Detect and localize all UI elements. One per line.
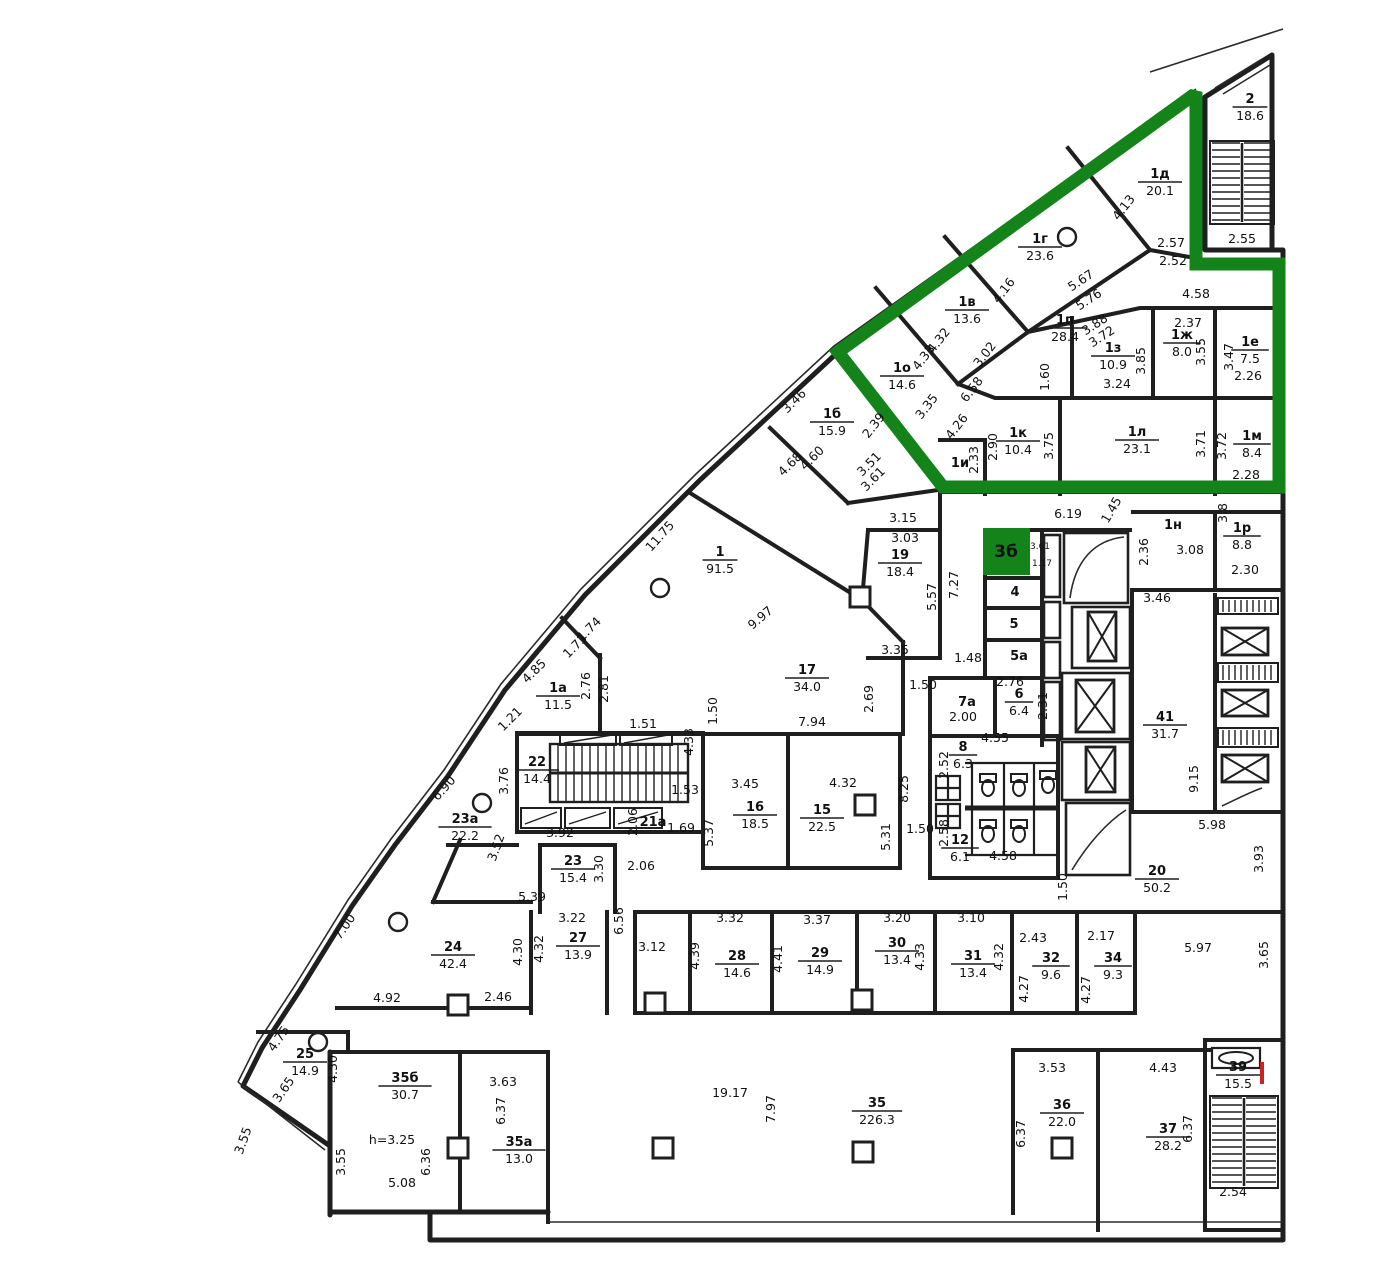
dim-label: 3.76	[496, 767, 511, 795]
dim-label: 5.31	[878, 823, 893, 851]
dim-label: 6.56	[611, 907, 626, 935]
dim-label: 3.93	[1251, 845, 1266, 873]
dim-label: 1.50	[1055, 873, 1070, 901]
floor-plan-drawing: 3б 218.61д20.11г23.61в13.61п28.41ж8.01е7…	[0, 0, 1375, 1280]
room-label: 1618.5	[733, 800, 777, 831]
dim-label: 3.12	[638, 939, 666, 954]
dim-label: 4.55	[981, 730, 1009, 745]
dim-label: 3.24	[1103, 376, 1131, 391]
svg-text:1п: 1п	[1056, 313, 1074, 328]
dim-label: 4.27	[1016, 975, 1031, 1003]
room-label: 1л23.1	[1115, 425, 1159, 456]
dim-label: 6.37	[1180, 1115, 1195, 1143]
room-tag: 1и	[951, 456, 969, 471]
dim-label: 4.32	[829, 775, 857, 790]
dim-label: 3.30	[591, 855, 606, 883]
room-label: 2442.4	[431, 940, 475, 971]
dim-label: 2.54	[1219, 1184, 1247, 1199]
dim-label: 5.97	[1184, 940, 1212, 955]
svg-text:15.5: 15.5	[1224, 1076, 1252, 1091]
room-label: 35226.3	[852, 1096, 902, 1127]
svg-text:31.7: 31.7	[1151, 726, 1179, 741]
dim-label: 1.50	[909, 677, 937, 692]
dim-label: 1.45	[1098, 494, 1125, 526]
dim-label: 2.52	[1159, 253, 1187, 268]
dim-label: 2.30	[1231, 562, 1259, 577]
svg-text:14.6: 14.6	[888, 377, 916, 392]
svg-text:9.3: 9.3	[1103, 967, 1123, 982]
dim-label: 3.85	[1133, 347, 1148, 375]
svg-text:1р: 1р	[1233, 521, 1251, 536]
dim-label: 3.55	[333, 1148, 348, 1176]
room-tag: 7а	[958, 695, 976, 710]
svg-text:6.1: 6.1	[950, 849, 970, 864]
svg-text:22.0: 22.0	[1048, 1114, 1076, 1129]
selected-room-marker[interactable]: 3б	[983, 528, 1030, 575]
svg-text:13.4: 13.4	[883, 952, 911, 967]
room-tag: 5	[1009, 617, 1018, 632]
svg-text:12: 12	[951, 833, 969, 848]
dim-label: 2.46	[484, 989, 512, 1004]
svg-text:50.2: 50.2	[1143, 880, 1171, 895]
dim-label: 4.16	[989, 275, 1018, 306]
dim-label: 9.15	[1186, 765, 1201, 793]
svg-text:13.6: 13.6	[953, 311, 981, 326]
dim-label: 3.53	[1038, 1060, 1066, 1075]
dim-label: 3.35	[912, 391, 941, 422]
dim-label: 3.10	[957, 910, 985, 925]
dim-label: 6.37	[1013, 1120, 1028, 1148]
svg-text:36: 36	[1053, 1098, 1071, 1113]
svg-text:6: 6	[1014, 687, 1023, 702]
dim-label: 2.52	[936, 751, 951, 779]
svg-text:2: 2	[1245, 92, 1254, 107]
dim-label: 6.36	[418, 1148, 433, 1176]
room-label: 218.6	[1233, 92, 1268, 123]
room-label: 1м8.4	[1233, 429, 1271, 460]
svg-text:7.5: 7.5	[1240, 351, 1260, 366]
svg-text:1в: 1в	[958, 295, 975, 310]
room-label: 1р8.8	[1223, 521, 1261, 552]
svg-text:1г: 1г	[1032, 232, 1048, 247]
svg-text:31: 31	[964, 949, 982, 964]
room-label: 66.4	[1005, 687, 1033, 718]
dim-label: 1.69	[667, 820, 695, 835]
svg-text:1: 1	[715, 545, 724, 560]
dim-label: 1.51	[629, 716, 657, 731]
dim-label: 3.45	[731, 776, 759, 791]
svg-text:13.0: 13.0	[505, 1151, 533, 1166]
room-label: 23а22.2	[438, 812, 491, 843]
dim-label: 2.76	[578, 672, 593, 700]
room-label: 2315.4	[551, 854, 595, 885]
dim-label: 2.57	[1157, 235, 1185, 250]
dim-label: 3.47	[1221, 343, 1236, 371]
svg-text:18.5: 18.5	[741, 816, 769, 831]
svg-text:1б: 1б	[823, 407, 841, 422]
svg-text:39: 39	[1229, 1060, 1247, 1075]
svg-text:1л: 1л	[1128, 425, 1147, 440]
dim-label: 4.27	[1078, 976, 1093, 1004]
dim-label: 2.36	[1136, 538, 1151, 566]
dim-label: 1.50	[705, 697, 720, 725]
room-tag: 5а	[1010, 649, 1028, 664]
svg-text:14.4: 14.4	[523, 771, 551, 786]
dim-label: 5.39	[518, 889, 546, 904]
dim-label: 7.00	[330, 911, 358, 942]
dim-label: 3.55	[1193, 338, 1208, 366]
svg-text:18.6: 18.6	[1236, 108, 1264, 123]
dim-label: 1.60	[1037, 363, 1052, 391]
dim-label: 3.61	[1030, 542, 1050, 552]
dim-label: 3.75	[1041, 432, 1056, 460]
room-label: 2214.4	[515, 755, 559, 786]
room-label: 1522.5	[800, 803, 844, 834]
dim-label: 5.37	[701, 819, 716, 847]
svg-text:15: 15	[813, 803, 831, 818]
room-label: 3113.4	[951, 949, 995, 980]
dim-label: 3.71	[1193, 430, 1208, 458]
svg-text:28: 28	[728, 949, 746, 964]
svg-text:8.4: 8.4	[1242, 445, 1262, 460]
dim-label: 3.03	[891, 530, 919, 545]
dim-label: 3.15	[889, 510, 917, 525]
svg-text:8: 8	[958, 740, 967, 755]
floor-plan-page: 3б 218.61д20.11г23.61в13.61п28.41ж8.01е7…	[0, 0, 1375, 1280]
svg-text:15.4: 15.4	[559, 870, 587, 885]
dim-label: 2.26	[1234, 368, 1262, 383]
room-label: 329.6	[1032, 951, 1070, 982]
svg-text:25: 25	[296, 1047, 314, 1062]
svg-text:35а: 35а	[506, 1135, 533, 1150]
room-label: 1а11.5	[536, 681, 580, 712]
svg-text:8.8: 8.8	[1232, 537, 1252, 552]
dim-label: 4.39	[687, 942, 702, 970]
dim-label: 3.35	[881, 642, 909, 657]
svg-text:30: 30	[888, 936, 906, 951]
dim-label: 3.8	[1215, 503, 1230, 523]
dim-label: 1.50	[906, 821, 934, 836]
dim-label: 4.43	[1149, 1060, 1177, 1075]
room-labels: 218.61д20.11г23.61в13.61п28.41ж8.01е7.51…	[283, 92, 1271, 1166]
room-label: 1б15.9	[810, 407, 854, 438]
svg-text:14.6: 14.6	[723, 965, 751, 980]
room-label: 2713.9	[556, 931, 600, 962]
room-label: 2050.2	[1135, 864, 1179, 895]
svg-text:22: 22	[528, 755, 546, 770]
svg-text:17: 17	[798, 663, 816, 678]
svg-text:9.6: 9.6	[1041, 967, 1061, 982]
svg-text:1а: 1а	[549, 681, 567, 696]
dim-label: 4.33	[681, 728, 696, 756]
dim-label: 7.97	[763, 1095, 778, 1123]
svg-text:6.3: 6.3	[953, 756, 973, 771]
dim-label: 2.55	[1228, 231, 1256, 246]
svg-text:41: 41	[1156, 710, 1174, 725]
dim-label: 4.41	[770, 945, 785, 973]
svg-text:27: 27	[569, 931, 587, 946]
dim-label: 1.21	[495, 704, 525, 734]
marker-label: 3б	[994, 542, 1018, 562]
dim-label: 3.65	[269, 1074, 297, 1105]
dim-label: 3.02	[970, 339, 999, 370]
dim-label: 6.58	[957, 374, 986, 405]
room-label: 1в13.6	[945, 295, 989, 326]
svg-text:10.4: 10.4	[1004, 442, 1032, 457]
svg-text:13.4: 13.4	[959, 965, 987, 980]
svg-text:22.2: 22.2	[451, 828, 479, 843]
svg-text:16: 16	[746, 800, 764, 815]
svg-text:226.3: 226.3	[859, 1112, 895, 1127]
svg-text:10.9: 10.9	[1099, 357, 1127, 372]
dim-label: 4.26	[942, 411, 971, 442]
svg-text:20.1: 20.1	[1146, 183, 1174, 198]
dim-label: 3.20	[883, 910, 911, 925]
dim-label: 1.17	[1032, 559, 1052, 569]
svg-text:23.1: 23.1	[1123, 441, 1151, 456]
dim-label: 2.69	[861, 685, 876, 713]
room-label: 2914.9	[798, 946, 842, 977]
dim-label: 3.65	[1256, 941, 1271, 969]
svg-text:18.4: 18.4	[886, 564, 914, 579]
dim-label: h=3.25	[369, 1132, 415, 1147]
svg-text:34: 34	[1104, 951, 1122, 966]
room-tag: 1н	[1164, 518, 1182, 533]
room-label: 4131.7	[1143, 710, 1187, 741]
svg-text:30.7: 30.7	[391, 1087, 419, 1102]
dim-label: 4.58	[989, 848, 1017, 863]
svg-text:23а: 23а	[452, 812, 479, 827]
dim-label: 2.00	[949, 709, 977, 724]
dim-label: 3.52	[484, 832, 508, 863]
svg-text:34.0: 34.0	[793, 679, 821, 694]
svg-text:1д: 1д	[1150, 167, 1170, 182]
dim-label: 3.08	[1176, 542, 1204, 557]
dim-label: 5.08	[388, 1175, 416, 1190]
dim-label: 3.46	[779, 386, 809, 416]
dim-label: 9.97	[745, 603, 776, 632]
dim-label: 3.37	[803, 912, 831, 927]
dim-label: 1.48	[954, 650, 982, 665]
outer-walls	[243, 55, 1283, 1240]
dim-label: 2.17	[1087, 928, 1115, 943]
dim-label: 1.53	[671, 782, 699, 797]
svg-text:23: 23	[564, 854, 582, 869]
svg-text:23.6: 23.6	[1026, 248, 1054, 263]
dim-label: 3.92	[546, 825, 574, 840]
dim-label: 4.32	[991, 943, 1006, 971]
dim-label: 4.30	[325, 1055, 340, 1083]
room-tag: 21а	[640, 815, 667, 830]
svg-text:1е: 1е	[1241, 335, 1259, 350]
dim-label: 2.06	[625, 808, 640, 836]
room-tag: 4	[1010, 585, 1019, 600]
dim-label: 4.32	[531, 935, 546, 963]
dim-label: 4.30	[510, 938, 525, 966]
dim-label: 7.94	[798, 714, 826, 729]
svg-text:6.4: 6.4	[1009, 703, 1029, 718]
room-label: 3915.5	[1216, 1060, 1260, 1091]
svg-text:28.4: 28.4	[1051, 329, 1079, 344]
dim-label: 6.19	[1054, 506, 1082, 521]
room-label: 35а13.0	[492, 1135, 545, 1166]
svg-text:35б: 35б	[391, 1071, 418, 1086]
dim-label: 2.58	[936, 819, 951, 847]
dim-label: 3.32	[716, 910, 744, 925]
svg-text:29: 29	[811, 946, 829, 961]
dim-label: 2.81	[596, 675, 611, 703]
dim-label: 2.90	[985, 433, 1000, 461]
svg-text:1к: 1к	[1009, 426, 1027, 441]
dim-label: 3.63	[489, 1074, 517, 1089]
dim-label: 2.28	[1232, 467, 1260, 482]
room-label: 1918.4	[878, 548, 922, 579]
room-label: 349.3	[1094, 951, 1132, 982]
room-label: 1г23.6	[1018, 232, 1062, 263]
dim-label: 3.22	[558, 910, 586, 925]
svg-text:14.9: 14.9	[806, 962, 834, 977]
svg-text:32: 32	[1042, 951, 1060, 966]
svg-text:37: 37	[1159, 1122, 1177, 1137]
svg-text:42.4: 42.4	[439, 956, 467, 971]
svg-text:13.9: 13.9	[564, 947, 592, 962]
svg-text:1з: 1з	[1105, 341, 1122, 356]
dim-label: 4.13	[1109, 192, 1138, 223]
room-label: 35б30.7	[378, 1071, 431, 1102]
dim-label: 2.31	[1035, 692, 1050, 720]
room-label: 1е7.5	[1231, 335, 1269, 366]
svg-text:22.5: 22.5	[808, 819, 836, 834]
dim-label: 3.72	[1214, 432, 1229, 460]
room-label: 1д20.1	[1138, 167, 1182, 198]
dim-label: 2.43	[1019, 930, 1047, 945]
dim-label: 6.37	[493, 1097, 508, 1125]
room-label: 86.3	[949, 740, 977, 771]
dim-label: 19.17	[712, 1085, 748, 1100]
dim-label: 2.76	[996, 674, 1024, 689]
svg-text:1ж: 1ж	[1171, 328, 1193, 343]
svg-text:11.5: 11.5	[544, 697, 572, 712]
dim-label: 2.06	[627, 858, 655, 873]
room-label: 2814.6	[715, 949, 759, 980]
room-label: 1к10.4	[996, 426, 1040, 457]
dim-label: 5.98	[1198, 817, 1226, 832]
room-label: 3622.0	[1040, 1098, 1084, 1129]
room-label: 191.5	[703, 545, 738, 576]
dim-label: 8.25	[896, 775, 911, 803]
dim-label: 5.57	[924, 583, 939, 611]
dim-label: 4.33	[912, 943, 927, 971]
svg-text:1м: 1м	[1242, 429, 1262, 444]
svg-text:35: 35	[868, 1096, 886, 1111]
dim-label: 2.37	[1174, 315, 1202, 330]
dim-label: 3.46	[1143, 590, 1171, 605]
room-label: 1734.0	[785, 663, 829, 694]
svg-text:24: 24	[444, 940, 462, 955]
dim-label: 7.27	[946, 571, 961, 599]
svg-text:15.9: 15.9	[818, 423, 846, 438]
svg-text:20: 20	[1148, 864, 1166, 879]
svg-text:8.0: 8.0	[1172, 344, 1192, 359]
dim-label: 4.85	[519, 656, 549, 686]
svg-text:19: 19	[891, 548, 909, 563]
dim-label: 3.55	[231, 1125, 255, 1156]
svg-text:14.9: 14.9	[291, 1063, 319, 1078]
dim-label: 4.58	[1182, 286, 1210, 301]
dim-label: 4.92	[373, 990, 401, 1005]
svg-text:28.2: 28.2	[1154, 1138, 1182, 1153]
svg-text:91.5: 91.5	[706, 561, 734, 576]
